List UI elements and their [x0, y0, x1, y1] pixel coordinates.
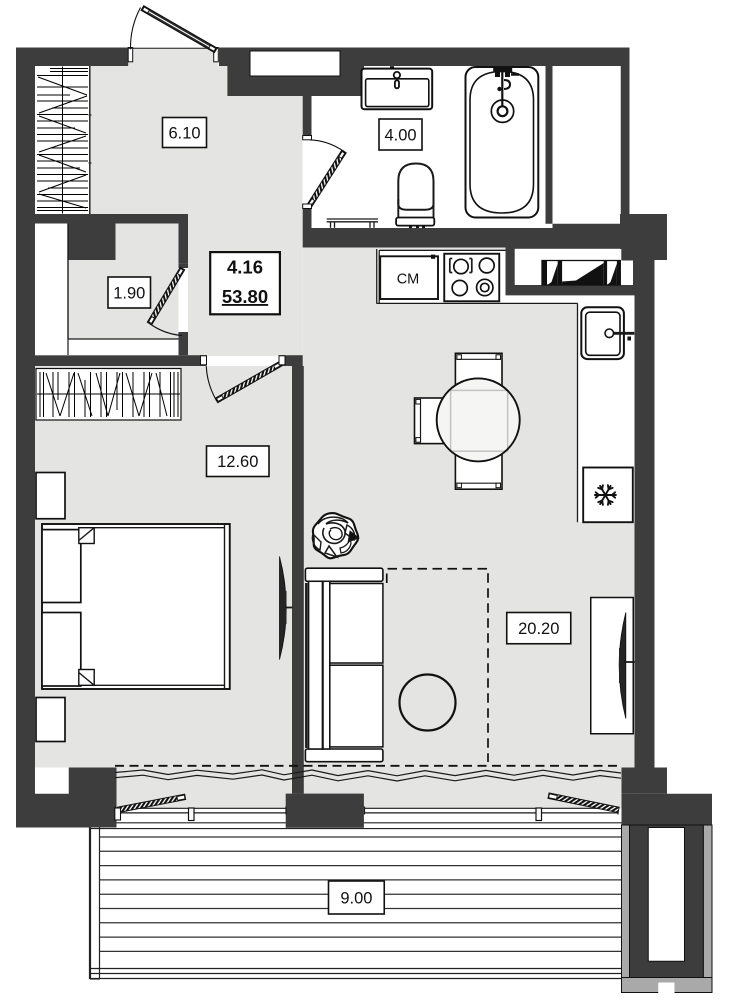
svg-text:1.90: 1.90 — [113, 284, 145, 302]
svg-text:4.16: 4.16 — [227, 257, 263, 278]
svg-text:9.00: 9.00 — [340, 889, 372, 907]
svg-text:12.60: 12.60 — [217, 453, 258, 471]
svg-text:20.20: 20.20 — [518, 620, 559, 638]
svg-text:4.00: 4.00 — [384, 126, 416, 144]
svg-text:6.10: 6.10 — [168, 124, 200, 142]
svg-text:53.80: 53.80 — [222, 286, 268, 307]
svg-text:СМ: СМ — [397, 272, 419, 288]
